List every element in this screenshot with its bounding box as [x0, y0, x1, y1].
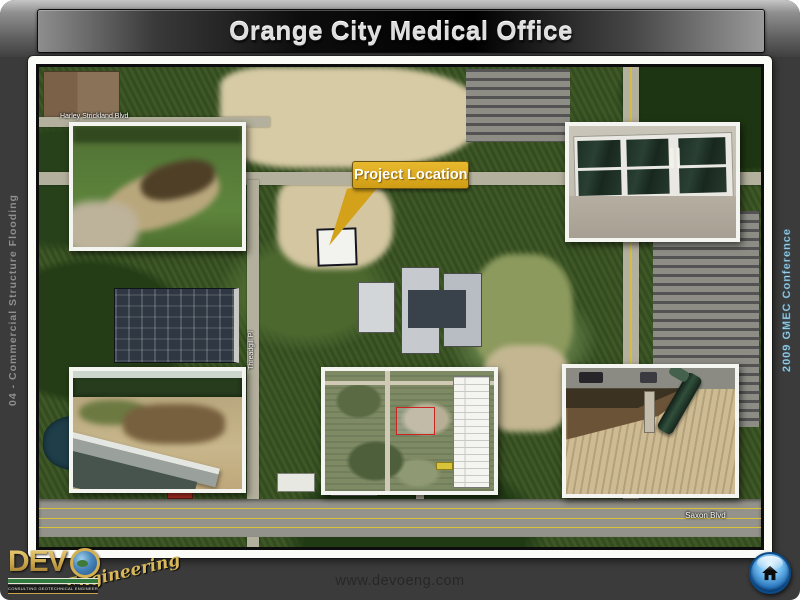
header-band: Orange City Medical Office: [0, 0, 800, 57]
tree-line: [73, 126, 242, 143]
street-label-harley: Harley Strickland Blvd: [60, 113, 128, 120]
site-outline-red: [396, 407, 435, 435]
lane-line: [39, 518, 761, 520]
left-sidebar-label: 04 - Commercial Structure Flooding: [7, 194, 19, 406]
inset-aerial-site-plan: [321, 367, 498, 494]
map-frame: Harley Strickland Blvd Threadgill Pl Sax…: [28, 56, 772, 558]
logo-devo-text: DEV: [8, 547, 67, 577]
home-button[interactable]: [749, 552, 791, 594]
slide-title: Orange City Medical Office: [229, 16, 573, 47]
inset-photo-entry-doors: [565, 122, 741, 242]
big-box-store: [114, 288, 239, 363]
vehicle: [579, 372, 603, 383]
parking-lot-north: [466, 69, 570, 142]
project-location-callout: Project Location: [352, 161, 469, 190]
title-bar: Orange City Medical Office: [37, 9, 765, 53]
medical-complex: [358, 267, 483, 352]
inset-photo-washout-pipe: [562, 364, 740, 498]
storefront-frame: [573, 132, 734, 202]
lane-line: [39, 527, 761, 529]
concrete-walkway: [569, 196, 737, 238]
door-handle: [669, 147, 673, 169]
outparcel-building: [277, 473, 315, 492]
medical-roof-section: [408, 290, 465, 327]
sand-path: [69, 201, 139, 251]
home-icon: [760, 563, 780, 583]
door-handle: [676, 147, 680, 169]
lane-line: [39, 508, 761, 510]
plan-data-table: [453, 376, 490, 488]
street-label-saxon: Saxon Blvd: [685, 511, 725, 520]
medical-wing: [358, 282, 395, 333]
logo-tagline: CONSULTING GEOTECHNICAL ENGINEERING: [8, 585, 98, 594]
inset-photo-eroded-canal-bank: [69, 367, 247, 492]
devo-engineering-logo: DEV Engineering CONSULTING GEOTECHNICAL …: [8, 547, 198, 597]
street-label-threadgill: Threadgill Pl: [248, 331, 255, 370]
inset-photo-eroded-grass-swale: [69, 122, 246, 250]
slide: Orange City Medical Office 04 - Commerci…: [0, 0, 800, 600]
globe-land: [77, 560, 88, 567]
mini-road: [385, 371, 389, 490]
vehicle: [640, 372, 657, 383]
highlight-mark: [436, 462, 453, 470]
callout-label: Project Location: [354, 167, 468, 183]
concrete-post: [644, 391, 655, 433]
highway-saxon-blvd: [39, 499, 761, 537]
aerial-map: Harley Strickland Blvd Threadgill Pl Sax…: [36, 64, 764, 550]
right-sidebar-label: 2009 GMEC Conference: [781, 228, 793, 372]
logo-stripes: [8, 578, 98, 584]
erosion-scarp: [123, 404, 225, 444]
